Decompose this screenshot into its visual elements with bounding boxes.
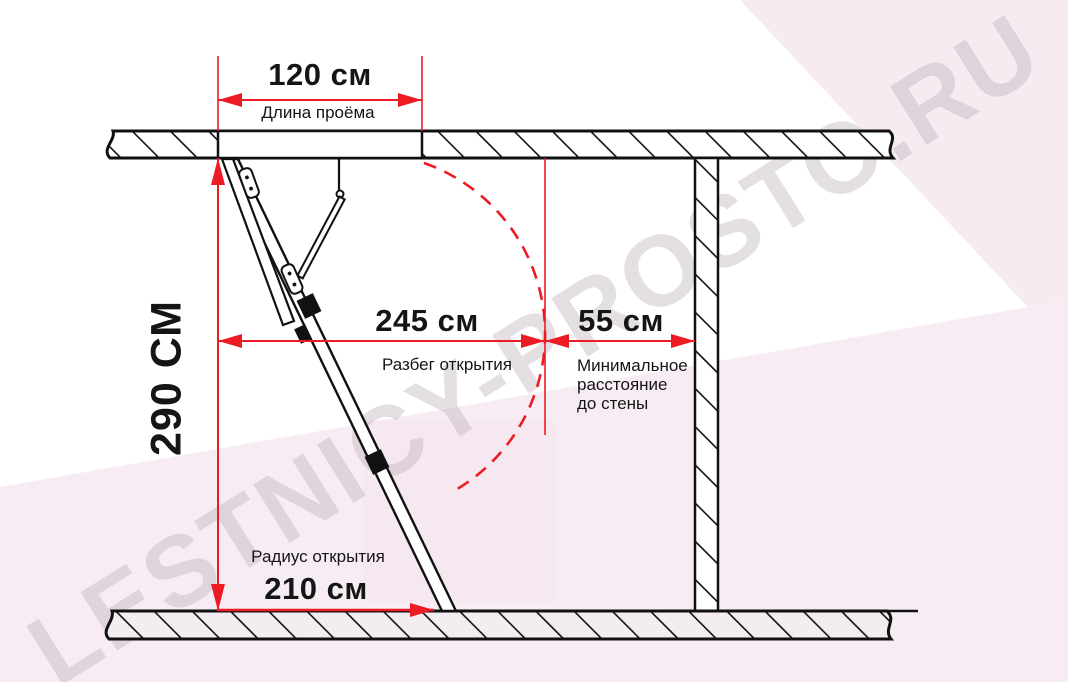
dim-label-wall-distance: Минимальное расстояние до стены (577, 356, 688, 413)
wall (695, 158, 718, 611)
ladder (222, 158, 456, 611)
dim-label-opening-run: Разбег открытия (382, 355, 512, 375)
dim-value-opening-run: 245 см (375, 303, 479, 339)
dim-value-opening-length: 120 см (268, 57, 372, 93)
ceiling (107, 131, 893, 158)
wall-distance-line-2: расстояние (577, 375, 688, 394)
wall-distance-line-1: Минимальное (577, 356, 688, 375)
dim-value-wall-distance: 55 см (578, 303, 664, 339)
dim-value-ceiling-height: 290 СМ (143, 300, 192, 456)
attic-ladder-dimension-diagram: LESTNICY-PROSTO.RU (0, 0, 1068, 682)
dim-label-opening-radius: Радиус открытия (251, 547, 385, 567)
floor (106, 611, 918, 639)
wall-distance-line-3: до стены (577, 394, 688, 413)
gas-strut (297, 158, 344, 278)
ceiling-opening (218, 131, 422, 158)
dim-label-opening-length: Длина проёма (261, 103, 374, 123)
dim-value-opening-radius: 210 см (264, 571, 368, 607)
hatch-door (222, 159, 294, 325)
